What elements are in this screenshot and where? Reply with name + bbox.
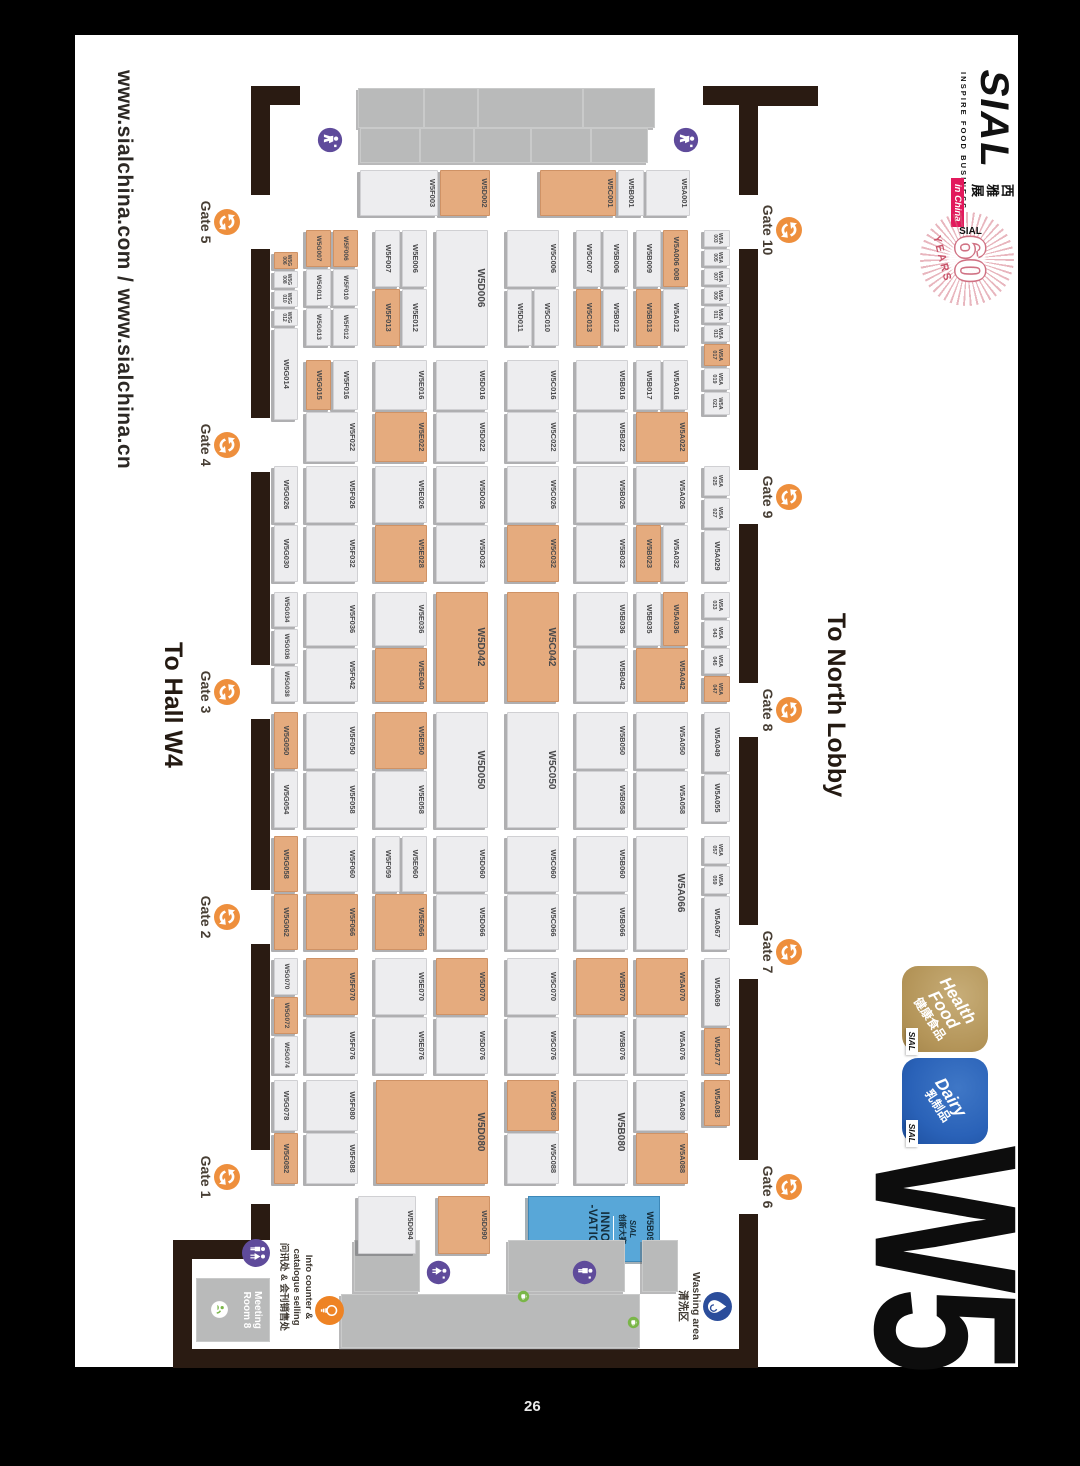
washing-area-icon [703,1291,734,1322]
sial-wordmark: SIAL [971,66,1016,173]
to-north-lobby-label: To North Lobby [821,540,850,870]
booth-label: W5A067 [713,908,721,937]
booth-label: W5C032 [549,539,557,568]
booth-label: W5E050 [417,726,425,755]
booth-W5G007: W5G007 [306,230,331,267]
page-number: 26 [524,1398,541,1415]
booth-W5A059: W5A059 [704,866,730,894]
info-counter-label: Info counter & catalogue selling 问讯处 & 会… [277,1212,314,1362]
booth-W5F013: W5F013 [375,289,400,346]
booth-W5B042: W5B042 [576,648,628,702]
booth-W5A058: W5A058 [636,771,688,828]
booth-W5B032: W5B032 [576,525,628,582]
booth-W5D070: W5D070 [436,958,488,1015]
booth-label: W5G007 [315,236,322,262]
booth-label: W5A036 [671,604,679,633]
booth-label: W5E036 [417,605,425,634]
booth-W5A033: W5A033 [704,592,730,618]
map-stage: SIAL INSPIRE FOOD BUSINESS 西雅展 in China … [0,0,1080,1466]
booth-label: W5A080 [678,1091,686,1120]
booth-W5G014: W5G014 [274,328,298,420]
booth-label: W5D094 [406,1210,414,1239]
booth-label: W5B013 [644,303,652,332]
gate-icon [212,677,242,707]
booth-W5A057: W5A057 [704,836,730,864]
booth-W5E012: W5E012 [402,289,427,346]
wall-segment [173,1349,758,1368]
booth-W5A070: W5A070 [636,958,688,1015]
booth-label: W5A088 [678,1144,686,1173]
meeting-room-icon [209,1298,232,1321]
booth-W5A083: W5A083 [704,1080,730,1126]
booth-label: W5F032 [348,539,356,567]
booth-label: W5A042 [678,660,686,689]
divider [613,1216,614,1242]
booth-label: W5F050 [348,726,356,754]
service-block [591,128,648,163]
booth-label: W5B009 [644,244,652,273]
booth-label: W5G012 [281,312,292,323]
booth-label: W5F060 [348,850,356,878]
booth-W5D090: W5D090 [438,1196,490,1254]
booth-label: W5A013 [712,328,723,339]
wall-segment [756,86,818,106]
booth-label: W5A012 [671,303,679,332]
booth-label: W5C042 [546,628,557,667]
booth-W5C060: W5C060 [507,836,559,892]
booth-label: W5F070 [348,972,356,1000]
booth-label: W5B012 [611,303,619,332]
booth-W5C010: W5C010 [534,289,559,346]
booth-W5E026: W5E026 [375,466,427,523]
booth-W5G015: W5G015 [306,360,331,410]
booth-W5A009: W5A009 [704,287,730,304]
restroom-icon [241,1238,271,1268]
booth-label: W5D002 [480,178,488,207]
gate-icon [212,902,242,932]
booth-label: W5A022 [678,422,686,451]
booth-W5E070: W5E070 [375,958,427,1015]
booth-W5G011: W5G011 [306,269,331,306]
booth-W5A047: W5A047 [704,676,730,702]
booth-W5A026: W5A026 [636,466,688,523]
booth-label: W5A059 [711,874,723,886]
booth-W5F026: W5F026 [306,466,358,523]
booth-label: W5F066 [348,908,356,936]
wall-segment [251,86,300,105]
booth-W5B001: W5B001 [618,170,644,216]
gate-icon [774,937,804,967]
booth-label: W5C010 [542,303,550,332]
booth-W5A005: W5A005 [704,249,730,266]
booth-label: W5C013 [584,303,592,332]
booth-W5A003: W5A003 [704,230,730,247]
booth-W5E036: W5E036 [375,592,427,646]
booth-W5B009: W5B009 [636,230,661,287]
booth-label: W5A043 [711,627,723,639]
booth-label: W5D006 [475,269,486,308]
booth-label: W5D060 [478,849,486,878]
booth-label: W5A009 [712,290,723,301]
dairy-badge: Dairy 乳制品 SIAL [902,1058,988,1144]
booth-label: W5B070 [618,972,626,1001]
health-food-badge: Health Food 健康食品 SIAL [902,966,988,1052]
booth-label: W5A027 [711,507,723,519]
badge-sial-tab: SIAL [906,1120,918,1147]
booth-label: W5D050 [475,751,486,790]
service-block [341,1294,640,1348]
booth-W5G072: W5G072 [274,997,298,1034]
booth-label: W5G008 [281,274,292,285]
booth-label: W5B017 [644,370,652,399]
snack-bar-icon [515,1287,534,1306]
booth-label: W5E076 [417,1031,425,1060]
booth-label: W5A017 [711,349,723,361]
booth-W5E028: W5E028 [375,525,427,582]
service-block [508,1240,625,1292]
booth-W5E060: W5E060 [402,836,427,892]
booth-label: W5F080 [348,1091,356,1119]
booth-label: W5F058 [348,785,356,813]
gate-icon [212,430,242,460]
booth-W5G010: W5G010 [274,290,298,307]
booth-W5E016: W5E016 [375,360,427,410]
gate-label: Gate 7 [758,907,776,997]
booth-W5G070: W5G070 [274,958,298,995]
booth-label: W5C088 [549,1144,557,1173]
anniversary-sial: SIAL [959,226,982,237]
gate-label: Gate 4 [196,400,214,490]
booth-W5B080: W5B080 [576,1080,628,1184]
meeting-room-line1: Meeting [252,1279,263,1341]
booth-label: W5B022 [618,422,626,451]
booth-label: W5A033 [711,599,723,611]
booth-label: W5A026 [678,480,686,509]
booth-W5A021: W5A021 [704,392,730,415]
booth-W5B058: W5B058 [576,771,628,828]
booth-label: W5C060 [549,849,557,878]
booth-W5F003: W5F003 [360,170,438,216]
hall-code: W5 [843,1146,1046,1368]
booth-label: W5F076 [348,1031,356,1059]
booth-label: W5C026 [549,480,557,509]
gate-icon [774,215,804,245]
booth-label: W5D090 [480,1210,488,1239]
booth-W5C070: W5C070 [507,958,559,1015]
wall-segment [739,249,758,470]
booth-W5E066: W5E066 [375,894,427,950]
booth-W5F036: W5F036 [306,592,358,646]
booth-label: W5A011 [712,309,723,320]
booth-W5A017: W5A017 [704,344,730,366]
booth-W5F070: W5F070 [306,958,358,1015]
booth-label: W5C001 [606,178,614,207]
booth-W5A080: W5A080 [636,1080,688,1131]
booth-label: W5G062 [282,907,290,937]
booth-W5A076: W5A076 [636,1017,688,1074]
service-block [583,88,655,128]
booth-W5G030: W5G030 [274,525,298,582]
service-block [358,88,424,128]
gate-label: Gate 2 [196,872,214,962]
booth-W5D006: W5D006 [436,230,488,346]
booth-W5A007: W5A007 [704,268,730,285]
info-counter-line3: 问讯处 & 会刊销售处 [277,1212,289,1362]
booth-label: W5A055 [713,783,721,812]
booth-label: W5G034 [282,597,289,623]
booth-label: W5B026 [618,480,626,509]
booth-label: W5A005 [712,252,723,263]
booth-W5A022: W5A022 [636,412,688,462]
booth-label: W5G015 [314,370,322,400]
booth-label: W5A069 [713,977,721,1006]
restroom-women-icon [426,1259,453,1286]
booth-label: W5B080 [615,1113,626,1152]
sial-chinese-name: 西雅展 [969,184,1014,200]
booth-W5F060: W5F060 [306,836,358,892]
gate-icon [774,482,804,512]
booth-label: W5C006 [549,244,557,273]
booth-W5B066: W5B066 [576,894,628,950]
booth-label: W5G074 [282,1042,289,1068]
wall-segment [739,1214,758,1368]
booth-label: W5D022 [478,422,486,451]
booth-label: W5G026 [282,480,290,510]
anniversary-number: 60 [946,236,994,283]
booth-label: W5E006 [410,244,418,273]
booth-label: W5E012 [410,303,418,332]
booth-W5A029: W5A029 [704,530,730,582]
booth-W5B017: W5B017 [636,360,661,410]
booth-W5A032: W5A032 [663,525,688,582]
booth-W5G062: W5G062 [274,894,298,950]
booth-W5C066: W5C066 [507,894,559,950]
inno-brand: SIAL [628,1197,637,1261]
booth-W5F022: W5F022 [306,412,358,462]
booth-W5D022: W5D022 [436,412,488,462]
booth-label: W5E026 [417,480,425,509]
booth-W5G054: W5G054 [274,771,298,828]
booth-label: W5G072 [282,1003,289,1029]
booth-label: W5A021 [711,397,723,409]
booth-W5G013: W5G013 [306,308,331,346]
booth-label: W5A070 [678,972,686,1001]
booth-label: W5E070 [417,972,425,1001]
booth-W5F059: W5F059 [375,836,400,892]
to-hall-w4-label: To Hall W4 [158,545,187,865]
booth-label: W5A001 [680,178,688,207]
booth-label: W5A003 [712,233,723,244]
booth-W5A013: W5A013 [704,325,730,342]
booth-label: W5G006 [281,255,292,266]
info-counter-line2: catalogue selling [289,1212,301,1362]
badge-sial-tab: SIAL [906,1028,918,1055]
booth-label: W5A007 [712,271,723,282]
booth-label: W5A049 [713,727,721,756]
booth-label: W5F010 [342,275,349,300]
booth-label: W5F003 [428,179,436,207]
booth-W5G034: W5G034 [274,592,298,627]
booth-W5B050: W5B050 [576,712,628,769]
wall-segment [251,719,270,890]
booth-label: W5G030 [282,539,290,569]
booth-W5C013: W5C013 [576,289,601,346]
booth-W5A012: W5A012 [663,289,688,346]
booth-label: W5D080 [475,1113,486,1152]
booth-W5A036: W5A036 [663,592,688,646]
booth-label: W5C022 [549,422,557,451]
booth-W5D002: W5D002 [440,170,490,216]
booth-label: W5F042 [348,661,356,689]
booth-W5G006: W5G006 [274,252,298,269]
booth-label: W5B006 [611,244,619,273]
booth-W5G038: W5G038 [274,666,298,702]
booth-label: W5G082 [282,1144,290,1174]
booth-label: W5G058 [282,849,290,879]
booth-label: W5B032 [618,539,626,568]
booth-label: W5E040 [417,661,425,690]
booth-label: W5E060 [410,850,418,879]
service-block [420,128,474,163]
booth-W5D032: W5D032 [436,525,488,582]
booth-W5C006: W5C006 [507,230,559,287]
booth-W5B006: W5B006 [603,230,628,287]
entrance-person-icon [316,126,344,154]
booth-W5G082: W5G082 [274,1133,298,1184]
booth-W5C026: W5C026 [507,466,559,523]
booth-label: W5B050 [618,726,626,755]
booth-label: W5B060 [618,849,626,878]
booth-W5D080: W5D080 [376,1080,488,1184]
booth-W5C022: W5C022 [507,412,559,462]
booth-label: W5A077 [713,1036,721,1065]
booth-label: W5F013 [383,303,391,331]
booth-W5A011: W5A011 [704,306,730,323]
booth-label: W5D076 [478,1031,486,1060]
booth-label: W5E028 [417,539,425,568]
wall-segment [739,979,758,1160]
booth-W5D026: W5D026 [436,466,488,523]
booth-label: W5F007 [383,244,391,272]
booth-label: W5A045 [711,655,723,667]
booth-W5F016: W5F016 [333,360,358,410]
booth-label: W5A050 [678,726,686,755]
booth-W5F006: W5F006 [333,230,358,267]
booth-W5D042: W5D042 [436,592,488,702]
booth-W5A055: W5A055 [704,774,730,822]
booth-label: W5A006 008 [671,237,679,281]
booth-label: W5C080 [549,1091,557,1120]
booth-W5B016: W5B016 [576,360,628,410]
booth-label: W5G078 [282,1091,290,1121]
booth-W5F050: W5F050 [306,712,358,769]
booth-W5B060: W5B060 [576,836,628,892]
booth-W5D011: W5D011 [507,289,532,346]
booth-label: W5F006 [342,236,349,261]
booth-label: W5G014 [282,359,290,389]
booth-label: W5A029 [713,541,721,570]
booth-label: W5C076 [549,1031,557,1060]
gate-icon [774,1172,804,1202]
booth-W5G058: W5G058 [274,836,298,892]
booth-label: W5C007 [584,244,592,273]
meeting-room-line2: Room 8 [241,1279,252,1341]
booth-W5D060: W5D060 [436,836,488,892]
booth-label: W5A016 [671,370,679,399]
wall-segment [739,524,758,683]
booth-W5A067: W5A067 [704,896,730,950]
booth-label: W5B066 [618,907,626,936]
service-block [642,1240,678,1292]
booth-label: W5D066 [478,907,486,936]
booth-W5G050: W5G050 [274,712,298,769]
booth-W5F076: W5F076 [306,1017,358,1074]
booth-W5B022: W5B022 [576,412,628,462]
booth-W5F080: W5F080 [306,1080,358,1131]
booth-label: W5C070 [549,972,557,1001]
booth-W5A088: W5A088 [636,1133,688,1184]
booth-label: W5F016 [341,371,349,399]
booth-W5C007: W5C007 [576,230,601,287]
booth-W5E050: W5E050 [375,712,427,769]
booth-W5D050: W5D050 [436,712,488,828]
booth-label: W5C016 [549,370,557,399]
booth-label: W5G070 [282,964,289,990]
booth-W5A019: W5A019 [704,368,730,390]
booth-label: W5E066 [417,908,425,937]
booth-label: W5G011 [315,275,322,300]
booth-W5C050: W5C050 [507,712,559,828]
wall-segment [251,472,270,665]
booth-label: W5A057 [711,844,723,856]
booth-W5A069: W5A069 [704,958,730,1026]
booth-label: W5G013 [315,314,322,340]
booth-W5A043: W5A043 [704,620,730,646]
booth-W5A001: W5A001 [646,170,690,216]
entrance-person-icon [672,126,700,154]
website-url: www.sialchina.com / www.sialchina.cn [112,70,136,469]
booth-W5B036: W5B036 [576,592,628,646]
service-block [474,128,531,163]
booth-label: W5A032 [671,539,679,568]
gate-icon [212,1162,242,1192]
booth-label: W5F088 [348,1144,356,1172]
booth-W5D094: W5D094 [358,1196,416,1254]
wall-segment [251,1204,270,1240]
booth-W5C016: W5C016 [507,360,559,410]
gate-label: Gate 10 [758,185,776,275]
booth-W5G012: W5G012 [274,309,298,326]
booth-label: W5C066 [549,907,557,936]
booth-label: W5F022 [348,423,356,451]
booth-W5G008: W5G008 [274,271,298,288]
booth-W5E022: W5E022 [375,412,427,462]
booth-label: W5A076 [678,1031,686,1060]
booth-label: W5A083 [713,1088,721,1117]
booth-label: W5D070 [478,972,486,1001]
booth-W5E076: W5E076 [375,1017,427,1074]
booth-label: W5B058 [618,785,626,814]
booth-W5A049: W5A049 [704,712,730,772]
service-block [531,128,591,163]
booth-W5A066: W5A066 [636,836,688,950]
booth-label: W5D032 [478,539,486,568]
booth-label: W5A066 [675,874,686,913]
booth-W5C076: W5C076 [507,1017,559,1074]
gate-icon [212,207,242,237]
booth-W5G078: W5G078 [274,1080,298,1131]
booth-label: W5F036 [348,605,356,633]
